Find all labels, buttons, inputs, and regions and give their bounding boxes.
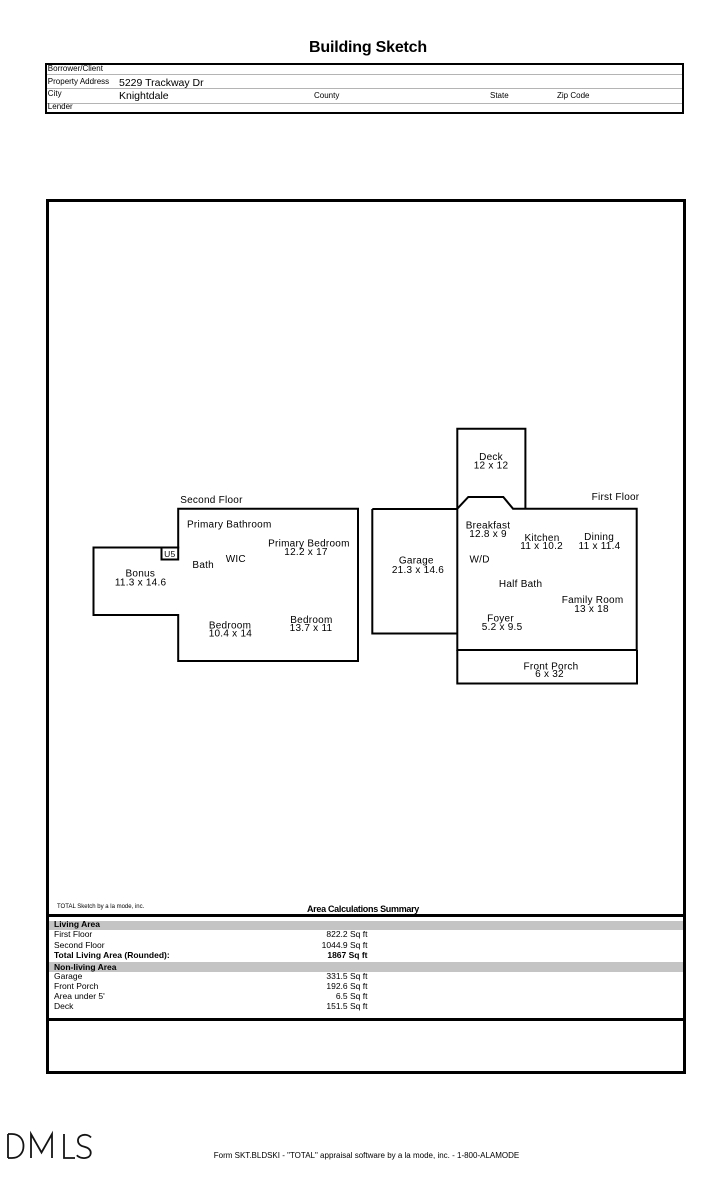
- svg-text:12 x 12: 12 x 12: [474, 460, 509, 471]
- svg-text:6 x 32: 6 x 32: [535, 669, 564, 680]
- svg-text:13 x 18: 13 x 18: [574, 604, 609, 615]
- svg-text:W/D: W/D: [469, 555, 489, 566]
- svg-text:WIC: WIC: [226, 554, 246, 565]
- svg-text:12.2 x 17: 12.2 x 17: [284, 547, 328, 558]
- svg-text:Half Bath: Half Bath: [499, 579, 542, 590]
- svg-text:Primary Bathroom: Primary Bathroom: [187, 520, 272, 531]
- svg-text:11.3 x 14.6: 11.3 x 14.6: [115, 577, 167, 588]
- svg-text:5.2 x 9.5: 5.2 x 9.5: [482, 622, 523, 633]
- svg-text:Bath: Bath: [192, 560, 214, 571]
- svg-text:21.3 x 14.6: 21.3 x 14.6: [392, 565, 444, 576]
- svg-text:11 x 11.4: 11 x 11.4: [579, 541, 621, 552]
- svg-text:13.7 x 11: 13.7 x 11: [290, 623, 333, 634]
- svg-text:10.4 x 14: 10.4 x 14: [209, 628, 253, 639]
- svg-text:U5: U5: [164, 549, 175, 559]
- svg-text:11 x 10.2: 11 x 10.2: [520, 541, 563, 552]
- svg-text:12.8 x 9: 12.8 x 9: [469, 529, 507, 540]
- svg-text:Second Floor: Second Floor: [180, 495, 243, 506]
- svg-text:First Floor: First Floor: [592, 492, 640, 503]
